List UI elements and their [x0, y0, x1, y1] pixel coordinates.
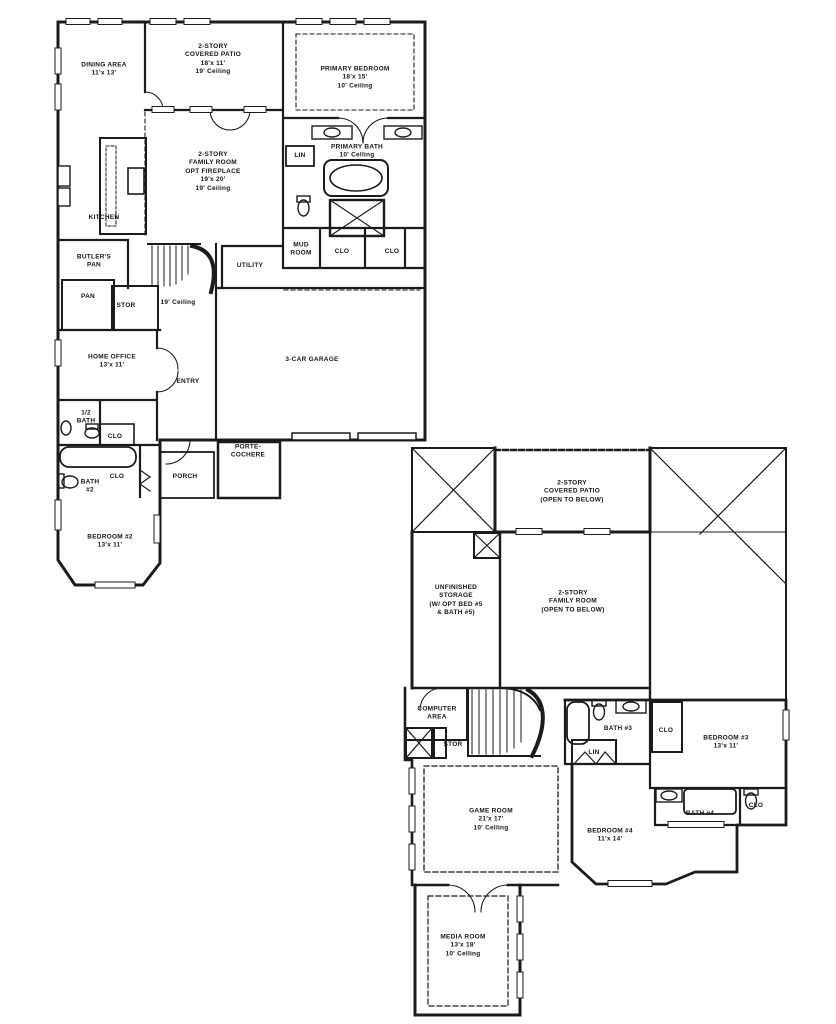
pan-label: PAN: [81, 293, 95, 301]
clo-3-label: CLO: [108, 433, 122, 441]
computer-area-label: COMPUTERAREA: [417, 706, 456, 723]
game-room-label: GAME ROOM21'x 17'10' Celling: [469, 807, 513, 832]
mud-room-label: MUDROOM: [290, 242, 311, 259]
covered-patio-label: 2-STORYCOVERED PATIO18'x 11'19' Ceiling: [185, 43, 241, 77]
bath-4-label: BATH #4: [686, 810, 714, 818]
family-room-label: 2-STORYFAMILY ROOMOPT FIREPLACE19'x 20'1…: [185, 151, 240, 193]
bedroom-2-label: BEDROOM #213'x 11': [87, 534, 132, 551]
bedroom-4-label: BEDROOM #411'x 14': [587, 828, 632, 845]
floor-plan-document: DINING AREA11'x 13'2-STORYCOVERED PATIO1…: [0, 0, 836, 1024]
stor-2-label: STOR: [444, 741, 463, 749]
garage-label: 3-CAR GARAGE: [285, 356, 338, 364]
butlers-pantry-label: BUTLER'SPAN: [77, 254, 111, 271]
linen-1-label: LIN: [294, 152, 305, 160]
dining-area-label: DINING AREA11'x 13': [81, 62, 126, 79]
stair-ceiling-label: 19' Ceiling: [161, 299, 196, 307]
porch-label: PORCH: [173, 473, 198, 481]
bedroom-3-label: BEDROOM #313'x 11': [703, 735, 748, 752]
primary-bedroom-label: PRIMARY BEDROOM18'x 15'10' Ceiling: [320, 65, 389, 90]
clo-2-label: CLO: [385, 248, 399, 256]
bath-3-label: BATH #3: [604, 725, 632, 733]
clo-4-label: CLO: [110, 473, 124, 481]
kitchen-label: KITCHEN: [89, 214, 120, 222]
home-office-label: HOME OFFICE13'x 11': [88, 354, 136, 371]
primary-bath-label: PRIMARY BATH10' Celling: [331, 144, 383, 161]
clo-5-label: CLO: [659, 727, 673, 735]
family-room-2-label: 2-STORYFAMILY ROOM(OPEN TO BELOW): [541, 589, 604, 614]
media-room-label: MEDIA ROOM13'x 18'10' Celling: [440, 933, 485, 958]
utility-label: UTILITY: [237, 262, 263, 270]
clo-6-label: CLO: [749, 802, 763, 810]
room-labels: DINING AREA11'x 13'2-STORYCOVERED PATIO1…: [0, 0, 836, 1024]
entry-label: ENTRY: [176, 378, 199, 386]
bath-2-label: BATH#2: [81, 479, 100, 496]
porte-cochere-label: PORTE-COCHERE: [231, 444, 265, 461]
stor-1-label: STOR: [117, 302, 136, 310]
half-bath-label: 1/2BATH: [77, 410, 96, 427]
unfinished-storage-label: UNFINISHEDSTORAGE(W/ OPT BED #5& BATH #5…: [429, 584, 482, 618]
linen-2-label: LIN: [588, 749, 599, 757]
clo-1-label: CLO: [335, 248, 349, 256]
covered-patio-2-label: 2-STORYCOVERED PATIO(OPEN TO BELOW): [540, 479, 603, 504]
